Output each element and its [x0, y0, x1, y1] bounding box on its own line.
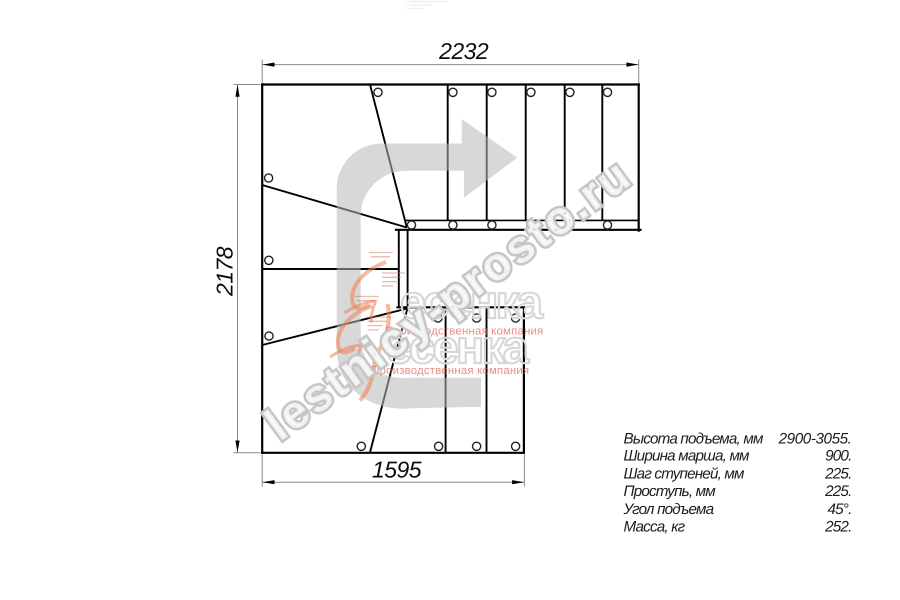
svg-text:Масса, кг: Масса, кг — [624, 519, 686, 536]
svg-text:Проступь, мм: Проступь, мм — [624, 483, 717, 500]
svg-text:225.: 225. — [824, 465, 851, 482]
svg-text:2232: 2232 — [438, 38, 489, 64]
svg-text:Ширина марша, мм: Ширина марша, мм — [624, 448, 751, 465]
svg-text:1595: 1595 — [372, 457, 422, 483]
svg-text:252.: 252. — [824, 519, 851, 536]
svg-text:Шаг ступеней, мм: Шаг ступеней, мм — [624, 465, 746, 482]
svg-text:900.: 900. — [825, 448, 851, 465]
svg-text:Угол подъема: Угол подъема — [623, 501, 714, 518]
svg-text:Высота подъема, мм: Высота подъема, мм — [624, 430, 765, 447]
svg-text:225.: 225. — [824, 483, 851, 500]
svg-text:2178: 2178 — [212, 246, 238, 297]
svg-text:45°.: 45°. — [828, 501, 852, 518]
svg-text:2900-3055.: 2900-3055. — [778, 430, 852, 447]
